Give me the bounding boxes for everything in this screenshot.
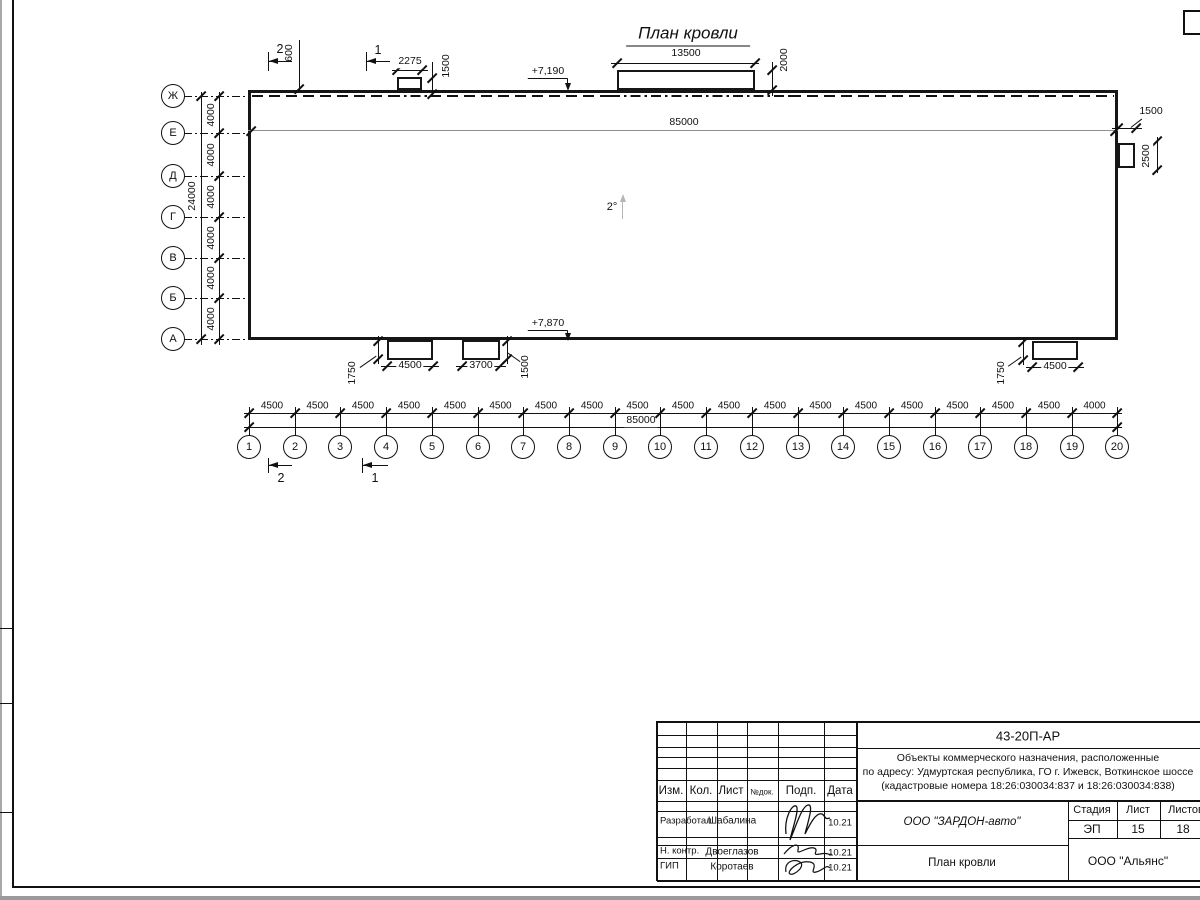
col-axis-bubble: 11 <box>694 435 718 459</box>
dim-label-row-spacing: 4000 <box>206 224 218 251</box>
slope-arrow-line <box>622 199 623 219</box>
tb-header-kol: Кол. <box>690 785 713 797</box>
dim-label-col-spacing: 4500 <box>717 401 741 412</box>
dim-chain-line <box>244 413 1122 414</box>
dim-label-col-spacing: 4500 <box>763 401 787 412</box>
canopy-box-mid <box>462 340 500 360</box>
dim-label-col-spacing: 4500 <box>671 401 695 412</box>
slope-label: 2° <box>605 201 620 213</box>
dim-line-left-total <box>201 92 202 345</box>
col-axis-bubble: 6 <box>466 435 490 459</box>
corner-stamp-line <box>1183 33 1200 35</box>
frame-margin-mark <box>0 812 12 813</box>
canopy-box-left <box>387 340 433 360</box>
dim-label: 2500 <box>1141 142 1153 169</box>
tb-org: ООО "ЗАРДОН-авто" <box>904 816 1021 828</box>
dim-label-col-spacing: 4500 <box>260 401 284 412</box>
row-axis-bubble: В <box>161 246 185 270</box>
col-axis-bubble: 18 <box>1014 435 1038 459</box>
dim-label-col-spacing: 4500 <box>1037 401 1061 412</box>
canopy-box-right <box>1032 341 1078 360</box>
dim-label-col-spacing: 4500 <box>625 401 649 412</box>
titleblock-line <box>1068 838 1200 839</box>
corner-stamp-line <box>1183 10 1185 34</box>
col-axis-bubble: 4 <box>374 435 398 459</box>
col-axis-bubble: 8 <box>557 435 581 459</box>
dim-label-col-spacing: 4500 <box>534 401 558 412</box>
col-axis-bubble: 2 <box>283 435 307 459</box>
roof-penthouse-large <box>617 70 755 90</box>
dim-label-col-spacing: 4500 <box>900 401 924 412</box>
dim-line-total-top <box>248 130 1118 131</box>
dim-label-row-spacing: 4000 <box>206 183 218 210</box>
dim-label: 4500 <box>1041 361 1068 373</box>
titleblock-line <box>657 721 1200 723</box>
tb-stage-label: Стадия <box>1073 804 1111 816</box>
roof-box-right <box>1118 143 1135 168</box>
section-label: 1 <box>375 43 382 57</box>
page-edge-left <box>0 0 2 900</box>
titleblock-line <box>657 757 856 758</box>
dim-label: 1500 <box>520 353 532 380</box>
dim-label-row-spacing: 4000 <box>206 264 218 291</box>
tb-stage-value: ЭП <box>1083 822 1100 836</box>
dim-label: 2275 <box>396 56 423 68</box>
tb-name: Двоеглазов <box>705 847 758 858</box>
dim-line <box>611 63 759 64</box>
corner-stamp-line <box>1183 10 1200 12</box>
frame-bottom-line <box>12 886 1200 888</box>
titleblock-line <box>1117 800 1118 838</box>
tb-role: Разработал <box>660 816 712 827</box>
tb-sheet-value: 15 <box>1131 822 1144 836</box>
roof-edge-dashed-line <box>790 95 1114 97</box>
titleblock-line <box>1160 800 1161 838</box>
col-axis-bubble: 3 <box>328 435 352 459</box>
tb-firm: ООО "Альянс" <box>1088 854 1168 868</box>
col-axis-bubble: 10 <box>648 435 672 459</box>
dim-label-row-spacing: 4000 <box>206 141 218 168</box>
dim-label-col-spacing: 4500 <box>808 401 832 412</box>
slope-arrow-head <box>620 194 626 202</box>
col-axis-bubble: 9 <box>603 435 627 459</box>
col-axis-bubble: 20 <box>1105 435 1129 459</box>
page-edge-bottom <box>0 896 1200 900</box>
tb-doc-code: 43-20П-АР <box>996 729 1060 744</box>
tb-role: Н. контр. <box>660 846 699 857</box>
tb-description-line2: по адресу: Удмуртская республика, ГО г. … <box>863 766 1194 778</box>
dim-label: 13500 <box>669 48 702 60</box>
dim-label-total-top: 85000 <box>667 117 700 129</box>
col-axis-bubble: 19 <box>1060 435 1084 459</box>
signature-2 <box>780 840 834 880</box>
titleblock-line <box>657 735 856 736</box>
dim-label-col-spacing: 4500 <box>351 401 375 412</box>
drawing-title: План кровли <box>626 24 750 47</box>
dim-label: 3700 <box>467 360 494 372</box>
tb-sheet-label: Лист <box>1126 804 1150 816</box>
col-axis-bubble: 14 <box>831 435 855 459</box>
tb-name: Коротаев <box>710 862 753 873</box>
dim-label: 1750 <box>996 359 1008 386</box>
dim-label-col-spacing: 4500 <box>945 401 969 412</box>
dim-label-row-spacing: 4000 <box>206 305 218 332</box>
dim-label-col-spacing: 4500 <box>580 401 604 412</box>
col-axis-bubble: 5 <box>420 435 444 459</box>
frame-margin-mark <box>0 628 12 629</box>
dim-label-col-spacing: 4500 <box>443 401 467 412</box>
dim-label: 1500 <box>441 52 453 79</box>
dim-label-col-spacing: 4500 <box>305 401 329 412</box>
tb-role: ГИП <box>660 861 679 872</box>
elevation-mark-bottom: +7,870 <box>528 317 568 331</box>
titleblock-line <box>857 845 1068 846</box>
dim-label-total-bottom: 85000 <box>624 415 657 427</box>
col-axis-bubble: 12 <box>740 435 764 459</box>
dim-label-col-spacing: 4500 <box>488 401 512 412</box>
roof-penthouse-small <box>397 77 422 90</box>
roof-edge-dashed-line <box>252 95 390 97</box>
titleblock-line <box>857 748 1200 749</box>
tb-sheets-label: Листов <box>1168 804 1200 816</box>
titleblock-line <box>657 768 856 769</box>
section-arrow <box>269 462 278 468</box>
drawing-sheet: План кровли 85000 2° 2275 1500 13500 200… <box>0 0 1200 900</box>
section-label: 2 <box>278 471 285 485</box>
section-arrow <box>269 58 278 64</box>
titleblock-line <box>657 880 1200 882</box>
dim-label-col-spacing: 4500 <box>854 401 878 412</box>
elevation-arrow-head <box>565 333 571 341</box>
dim-label-col-spacing: 4500 <box>991 401 1015 412</box>
titleblock-line <box>857 800 1200 802</box>
titleblock-line <box>657 747 856 748</box>
dim-label: 1500 <box>1137 106 1164 118</box>
dim-label-left-total: 24000 <box>187 179 199 212</box>
row-axis-bubble: Е <box>161 121 185 145</box>
dim-label: 2000 <box>779 46 791 73</box>
col-axis-bubble: 7 <box>511 435 535 459</box>
dim-label: 1750 <box>347 359 359 386</box>
roof-edge-dashed-line <box>430 95 610 97</box>
row-axis-bubble: Д <box>161 164 185 188</box>
titleblock-line <box>1068 820 1200 821</box>
row-axis-bubble: Б <box>161 286 185 310</box>
tb-description-line1: Объекты коммерческого назначения, распол… <box>897 752 1159 764</box>
section-arrow <box>363 462 372 468</box>
tb-description-line3: (кадастровые номера 18:26:030034:837 и 1… <box>881 780 1175 792</box>
section-arrow <box>367 58 376 64</box>
tb-name: Шабалина <box>708 816 756 827</box>
col-axis-bubble: 16 <box>923 435 947 459</box>
elevation-arrow-head <box>565 83 571 91</box>
dim-label-row-spacing: 4000 <box>206 101 218 128</box>
dim-total-line <box>244 427 1122 428</box>
tb-header-izm: Изм. <box>659 785 684 797</box>
titleblock-line <box>1068 800 1069 880</box>
dim-label-col-spacing: 4000 <box>1082 401 1106 412</box>
section-label: 1 <box>372 471 379 485</box>
dim-label: 4500 <box>396 360 423 372</box>
tb-header-podp: Подп. <box>786 785 817 797</box>
section-label: 2 <box>277 42 284 56</box>
elevation-mark-top: +7,190 <box>528 65 568 79</box>
col-axis-bubble: 1 <box>237 435 261 459</box>
frame-left-line <box>12 0 14 888</box>
dim-line <box>299 40 300 92</box>
tb-sheet-title: План кровли <box>928 857 996 869</box>
row-axis-bubble: Г <box>161 205 185 229</box>
tb-header-ndok: №док. <box>750 788 773 797</box>
roof-edge-dashdot-line <box>390 95 430 97</box>
dim-label-col-spacing: 4500 <box>397 401 421 412</box>
row-axis-bubble: Ж <box>161 84 185 108</box>
tb-sheets-value: 18 <box>1176 822 1189 836</box>
titleblock-line <box>657 780 856 781</box>
tb-header-data: Дата <box>827 785 852 797</box>
frame-margin-mark <box>0 703 12 704</box>
tb-header-list: Лист <box>719 785 744 797</box>
signature-1 <box>782 800 832 842</box>
col-axis-bubble: 17 <box>968 435 992 459</box>
col-axis-bubble: 15 <box>877 435 901 459</box>
row-axis-bubble: А <box>161 327 185 351</box>
roof-edge-dashdot-line <box>610 95 790 97</box>
col-axis-bubble: 13 <box>786 435 810 459</box>
